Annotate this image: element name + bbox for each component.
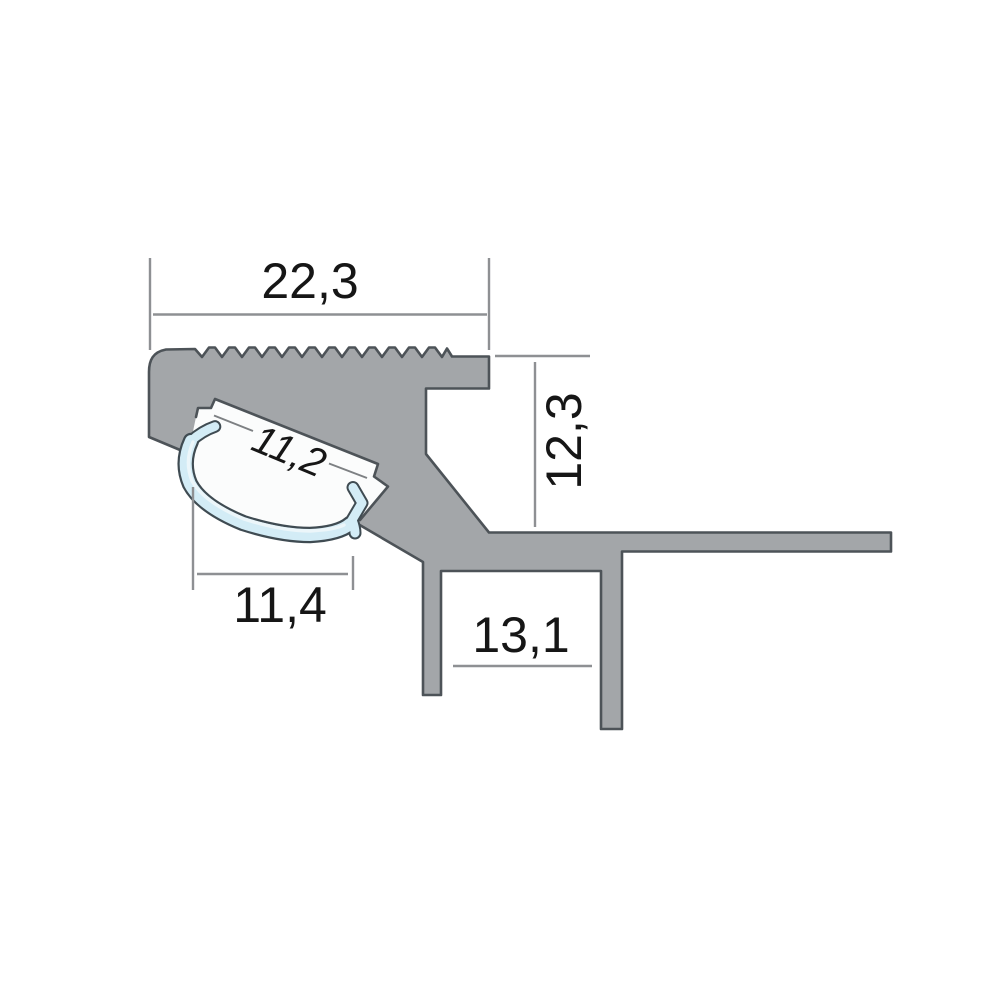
svg-text:22,3: 22,3 [261, 253, 358, 309]
svg-text:12,3: 12,3 [536, 392, 592, 489]
svg-text:11,4: 11,4 [233, 577, 327, 633]
svg-text:13,1: 13,1 [472, 607, 569, 663]
